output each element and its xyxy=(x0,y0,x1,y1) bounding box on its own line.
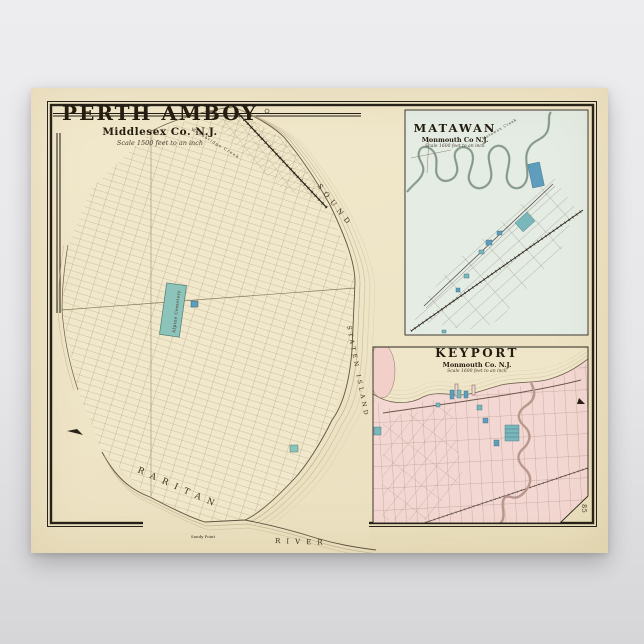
matawan-title-block: MATAWAN Monmouth Co N.J. Scale 1600 feet… xyxy=(385,121,525,149)
page-number: 85 xyxy=(580,504,588,513)
keyport-title: KEYPORT xyxy=(407,346,547,360)
city-block-blue xyxy=(191,301,198,307)
gas-works-symbol xyxy=(265,109,269,113)
keyport-scale-note: Scale 1600 feet to an inch xyxy=(407,369,547,374)
keyport-title-block: KEYPORT Monmouth Co. N.J. Scale 1600 fee… xyxy=(407,346,547,374)
sandy-point-label: Sandy Point xyxy=(191,534,216,539)
railroad-west xyxy=(57,133,60,313)
keyport-subtitle: Monmouth Co. N.J. xyxy=(407,361,547,369)
compass-arrow xyxy=(67,429,83,435)
perth-amboy-title-block: PERTH AMBOY Middlesex Co. N.J. Scale 150… xyxy=(57,101,263,147)
city-block-teal xyxy=(290,445,298,452)
perth-amboy-subtitle: Middlesex Co. N.J. xyxy=(57,126,263,138)
matawan-scale-note: Scale 1600 feet to an inch xyxy=(385,144,525,149)
river-bleed-area xyxy=(143,514,369,553)
product-photo-stage: Alpine Cemetery Woodbridge Creek SOUND S… xyxy=(0,0,644,644)
matawan-subtitle: Monmouth Co N.J. xyxy=(385,136,525,144)
vintage-map-poster: Alpine Cemetery Woodbridge Creek SOUND S… xyxy=(31,88,608,553)
keyport-pier-2 xyxy=(472,385,475,395)
matawan-title: MATAWAN xyxy=(385,121,525,135)
perth-amboy-title: PERTH AMBOY xyxy=(57,101,263,125)
perth-amboy-scale-note: Scale 1500 feet to an inch xyxy=(57,139,263,147)
map-artwork: Alpine Cemetery Woodbridge Creek SOUND S… xyxy=(31,88,608,553)
perth-amboy-map: Alpine Cemetery Woodbridge Creek SOUND S… xyxy=(53,100,380,553)
